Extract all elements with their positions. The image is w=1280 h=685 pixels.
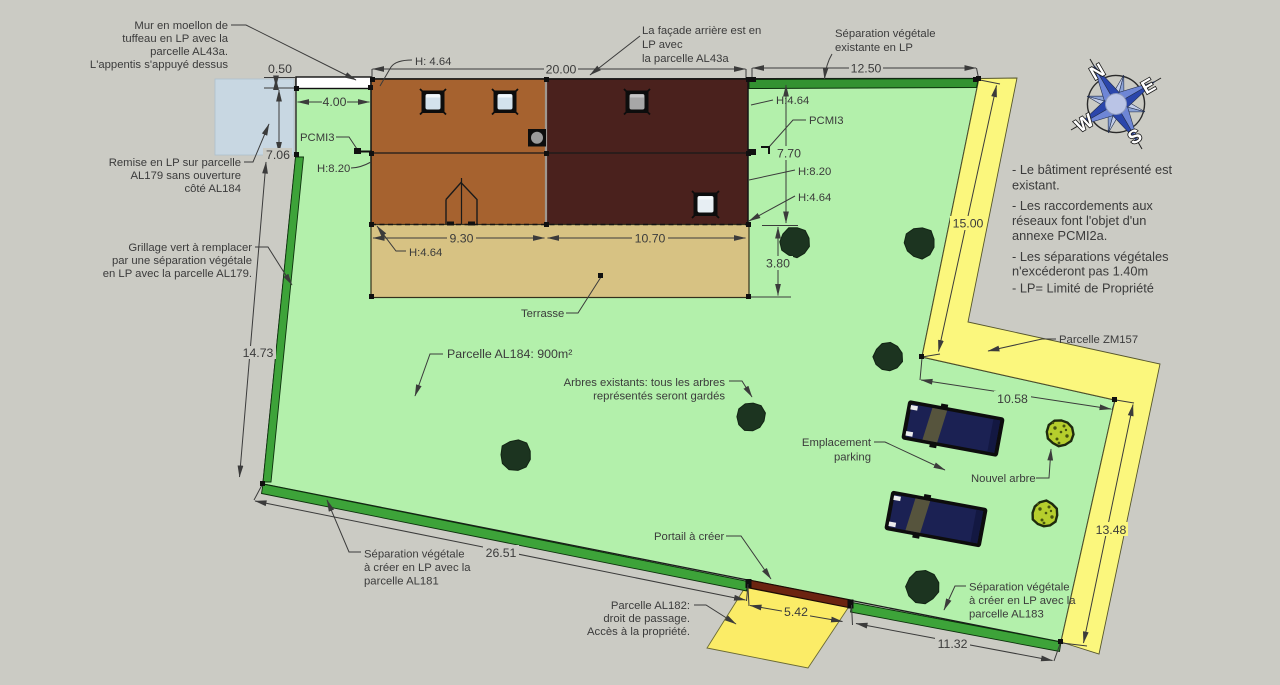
svg-text:H:8.20: H:8.20 (798, 166, 831, 178)
svg-text:H: 4.64: H: 4.64 (415, 56, 451, 68)
svg-text:la parcelle AL43a: la parcelle AL43a (642, 53, 729, 65)
svg-text:5.42: 5.42 (784, 605, 808, 619)
svg-text:n'excéderont pas 1.40m: n'excéderont pas 1.40m (1012, 264, 1148, 279)
svg-text:H:4.64: H:4.64 (409, 247, 442, 259)
svg-text:Emplacement: Emplacement (802, 437, 872, 449)
svg-text:0.50: 0.50 (268, 62, 292, 76)
svg-text:11.32: 11.32 (938, 637, 968, 651)
svg-text:annexe PCMI2a.: annexe PCMI2a. (1012, 228, 1107, 243)
svg-text:13.48: 13.48 (1096, 523, 1127, 537)
svg-text:LP avec: LP avec (642, 39, 683, 51)
svg-text:- Les raccordements aux: - Les raccordements aux (1012, 198, 1153, 213)
svg-text:10.70: 10.70 (635, 232, 666, 246)
svg-text:Séparation végétale: Séparation végétale (364, 549, 465, 561)
svg-text:Parcelle AL184: 900m²: Parcelle AL184: 900m² (447, 347, 572, 361)
svg-text:Accès à la propriété.: Accès à la propriété. (587, 626, 690, 638)
svg-text:La façade arrière est en: La façade arrière est en (642, 25, 761, 37)
svg-text:L'appentis s'appuyé dessus: L'appentis s'appuyé dessus (90, 59, 228, 71)
svg-text:7.06: 7.06 (266, 148, 290, 162)
svg-text:en LP avec la parcelle AL179.: en LP avec la parcelle AL179. (103, 268, 252, 280)
svg-text:Parcelle AL182:: Parcelle AL182: (611, 600, 690, 612)
svg-text:PCMI3: PCMI3 (809, 115, 844, 127)
svg-text:côté AL184: côté AL184 (184, 183, 241, 195)
svg-text:représentés seront gardés: représentés seront gardés (593, 391, 725, 403)
svg-text:H:4.64: H:4.64 (798, 192, 831, 204)
svg-text:26.51: 26.51 (486, 546, 517, 560)
svg-text:14.73: 14.73 (243, 346, 274, 360)
svg-text:à créer en LP avec la: à créer en LP avec la (364, 562, 471, 574)
svg-text:Grillage vert à remplacer: Grillage vert à remplacer (128, 242, 252, 254)
svg-text:Mur en moellon de: Mur en moellon de (134, 20, 228, 32)
svg-text:10.58: 10.58 (997, 392, 1028, 406)
svg-text:- LP= Limité de Propriété: - LP= Limité de Propriété (1012, 281, 1154, 296)
svg-text:3.80: 3.80 (766, 257, 790, 271)
svg-text:parcelle AL181: parcelle AL181 (364, 576, 439, 588)
svg-text:H:8.20: H:8.20 (317, 163, 350, 175)
svg-text:parcelle AL43a.: parcelle AL43a. (150, 46, 228, 58)
svg-text:Arbres existants: tous les arb: Arbres existants: tous les arbres (564, 377, 726, 389)
svg-text:H:4.64: H:4.64 (776, 95, 809, 107)
svg-text:20.00: 20.00 (546, 63, 577, 77)
svg-text:parcelle AL183: parcelle AL183 (969, 609, 1044, 621)
svg-text:Portail à créer: Portail à créer (654, 531, 725, 543)
svg-text:12.50: 12.50 (851, 62, 882, 76)
svg-text:Parcelle ZM157: Parcelle ZM157 (1059, 334, 1138, 346)
svg-text:- Le bâtiment représenté est: - Le bâtiment représenté est (1012, 162, 1172, 177)
svg-text:- Les séparations végétales: - Les séparations végétales (1012, 249, 1169, 264)
svg-text:réseaux font l'objet d'un: réseaux font l'objet d'un (1012, 213, 1146, 228)
svg-text:15.00: 15.00 (953, 217, 984, 231)
svg-text:9.30: 9.30 (450, 232, 474, 246)
svg-text:à créer en LP avec la: à créer en LP avec la (969, 595, 1076, 607)
svg-text:PCMI3: PCMI3 (300, 132, 335, 144)
svg-text:droit de passage.: droit de passage. (603, 613, 690, 625)
svg-text:AL179 sans ouverture: AL179 sans ouverture (130, 170, 241, 182)
svg-text:4.00: 4.00 (323, 95, 347, 109)
svg-text:existante en LP: existante en LP (835, 42, 913, 54)
svg-text:Séparation végétale: Séparation végétale (969, 582, 1070, 594)
svg-text:parking: parking (834, 452, 871, 464)
svg-text:7.70: 7.70 (777, 147, 801, 161)
svg-text:Remise en LP sur parcelle: Remise en LP sur parcelle (109, 157, 241, 169)
svg-text:par une séparation végétale: par une séparation végétale (112, 255, 252, 267)
svg-text:existant.: existant. (1012, 178, 1060, 193)
svg-text:Nouvel arbre: Nouvel arbre (971, 473, 1036, 485)
svg-text:Séparation végétale: Séparation végétale (835, 28, 936, 40)
svg-text:Terrasse: Terrasse (521, 308, 564, 320)
svg-text:tuffeau en LP avec la: tuffeau en LP avec la (122, 33, 228, 45)
